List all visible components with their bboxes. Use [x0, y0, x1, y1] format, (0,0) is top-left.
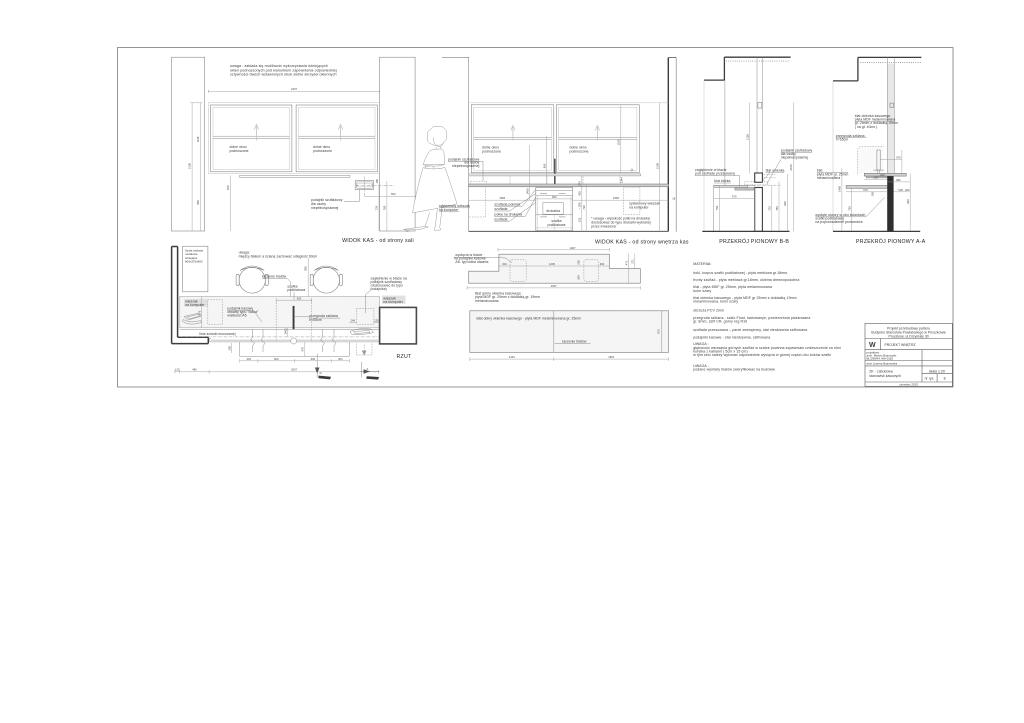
svg-text:720: 720: [375, 205, 379, 210]
svg-text:B: B: [319, 372, 323, 374]
svg-text:471: 471: [624, 260, 628, 265]
svg-text:225: 225: [578, 217, 582, 222]
svg-text:600: 600: [274, 357, 279, 361]
svg-text:8: 8: [944, 377, 946, 381]
svg-text:PRZEKRÓJ PIONOWY A-A: PRZEKRÓJ PIONOWY A-A: [856, 238, 926, 245]
svg-text:szuflada: szuflada: [494, 207, 507, 211]
svg-text:melaminowana: melaminowana: [817, 176, 841, 180]
svg-text:szuflada: szuflada: [494, 217, 507, 221]
svg-text:PRZEKRÓJ PIONOWY B-B: PRZEKRÓJ PIONOWY B-B: [719, 238, 789, 245]
svg-text:930: 930: [783, 201, 787, 206]
svg-text:niepełnosprawnej: niepełnosprawnej: [311, 206, 339, 210]
svg-text:1544: 1544: [619, 177, 623, 183]
svg-text:600: 600: [311, 357, 316, 361]
svg-text:szuflada półmisk: szuflada półmisk: [494, 202, 520, 206]
svg-text:w tym celu należy wykonać odpo: w tym celu należy wykonać odpowiednie wy…: [693, 353, 831, 357]
svg-text:304: 304: [600, 262, 605, 266]
svg-text:1150: 1150: [617, 139, 621, 145]
svg-text:238: 238: [577, 260, 581, 265]
svg-text:~ 300: ~ 300: [578, 202, 582, 209]
svg-text:między blatem a ścianą zachowa: między blatem a ścianą zachować odległoś…: [239, 255, 318, 259]
svg-text:1434: 1434: [509, 355, 515, 359]
svg-text:podnoszone: podnoszone: [482, 149, 501, 153]
svg-text:gr. 8mm, szlif CR, górny róg R: gr. 8mm, szlif CR, górny róg R10: [693, 319, 747, 323]
svg-text:fronty szuflad - płyta meblowa: fronty szuflad - płyta meblowa gr.18mm, …: [693, 278, 799, 282]
svg-text:1150: 1150: [745, 134, 749, 140]
svg-text:900: 900: [303, 266, 307, 271]
svg-text:200: 200: [873, 176, 878, 180]
svg-text:niepełnosprawnej: niepełnosprawnej: [452, 164, 480, 168]
svg-text:1400: 1400: [838, 186, 842, 192]
svg-text:180: 180: [375, 179, 379, 184]
svg-text:470: 470: [301, 347, 305, 352]
svg-text:930: 930: [906, 199, 910, 204]
svg-text:przez inwestora: przez inwestora: [591, 224, 616, 228]
svg-text:h=65cm: h=65cm: [309, 318, 322, 322]
svg-text:obrzeża PCV 2mm: obrzeża PCV 2mm: [693, 309, 724, 313]
svg-text:sztywności dwóch wstawionych o: sztywności dwóch wstawionych obok siebie…: [230, 73, 337, 77]
svg-text:18: 18: [672, 197, 675, 201]
svg-text:1566: 1566: [499, 196, 505, 200]
svg-text:480: 480: [896, 178, 901, 182]
svg-text:h=65cm: h=65cm: [836, 137, 849, 141]
svg-text:270: 270: [578, 181, 582, 186]
svg-text:600: 600: [297, 296, 302, 300]
svg-text:750: 750: [847, 206, 851, 211]
svg-text:podajniki kasowe - stal nierdz: podajniki kasowe - stal nierdzewna, szli…: [693, 335, 770, 339]
svg-text:675: 675: [197, 310, 201, 315]
svg-text:150: 150: [870, 192, 874, 197]
svg-text:melaminowana: melaminowana: [475, 299, 499, 303]
svg-text:melaminowana, kolor szary: melaminowana, kolor szary: [693, 300, 738, 304]
svg-text:podnoszone: podnoszone: [230, 149, 249, 153]
svg-text:łączenie blatów: łączenie blatów: [562, 340, 587, 344]
svg-text:na poprowadzenie przewodów: na poprowadzenie przewodów: [815, 220, 863, 224]
svg-text:WIDOK KAS - od strony wnętrza: WIDOK KAS - od strony wnętrza kas: [595, 239, 689, 245]
svg-text:podnoszone: podnoszone: [313, 149, 332, 153]
svg-text:1566: 1566: [613, 196, 619, 200]
svg-text:podane wymiary blatów zweryfik: podane wymiary blatów zweryfikować na bu…: [693, 367, 775, 371]
svg-text:760: 760: [775, 206, 779, 211]
svg-text:2100: 2100: [188, 163, 192, 169]
svg-text:249: 249: [351, 318, 356, 322]
svg-text:WIDOK KAS - od strony sali: WIDOK KAS - od strony sali: [342, 238, 414, 244]
svg-text:RZUT: RZUT: [397, 354, 413, 360]
svg-text:200: 200: [905, 188, 910, 192]
svg-text:półka na drukarkę: półka na drukarkę: [494, 213, 522, 217]
svg-text:W: W: [869, 342, 876, 349]
svg-text:1400: 1400: [525, 188, 529, 194]
svg-text:blat okienka: blat okienka: [766, 168, 785, 172]
svg-text:podnoszone: podnoszone: [570, 149, 589, 153]
svg-text:blat biurka: blat biurka: [714, 179, 730, 183]
svg-text:boki, korpus szafki podblatowe: boki, korpus szafki podblatowej - płyta …: [693, 271, 788, 275]
svg-text:2607: 2607: [551, 284, 557, 288]
svg-text:435: 435: [578, 191, 582, 196]
svg-text:BL/299/94, WA-0118: BL/299/94, WA-0118: [867, 357, 894, 361]
svg-text:czerwiec 2015: czerwiec 2015: [899, 382, 918, 386]
svg-text:szuflada przesuwana – panel ze: szuflada przesuwana – panel zewnętrzny, …: [693, 328, 807, 332]
svg-text:1200: 1200: [549, 262, 555, 266]
svg-text:na komputer: na komputer: [383, 300, 403, 304]
svg-text:670: 670: [732, 194, 737, 198]
svg-text:750: 750: [715, 205, 719, 210]
svg-text:675: 675: [656, 329, 660, 334]
svg-text:łączenie blatów: łączenie blatów: [262, 275, 287, 279]
svg-text:600: 600: [552, 195, 557, 199]
svg-text:kolor szary: kolor szary: [693, 289, 711, 293]
svg-text:( na gł. 40cm ): ( na gł. 40cm ): [855, 125, 878, 129]
svg-text:2607: 2607: [291, 368, 297, 372]
svg-text:304: 304: [502, 262, 507, 266]
svg-text:1664: 1664: [608, 355, 614, 359]
svg-text:670: 670: [863, 188, 868, 192]
svg-text:A: A: [367, 367, 369, 371]
svg-text:720: 720: [768, 206, 772, 211]
svg-text:600x370x900: 600x370x900: [185, 259, 203, 263]
svg-text:MATERIAŁ: MATERIAŁ: [693, 262, 711, 266]
svg-text:stanowisk kasowych: stanowisk kasowych: [869, 374, 901, 378]
svg-text:pod szufladę przesuwaną: pod szufladę przesuwaną: [695, 172, 735, 176]
svg-text:*120: *120: [898, 188, 904, 192]
svg-text:A5- typ łódka otwarta: A5- typ łódka otwarta: [455, 260, 488, 264]
svg-text:240: 240: [880, 173, 885, 177]
svg-text:niepełnosprawnej: niepełnosprawnej: [781, 156, 809, 160]
svg-text:1407: 1407: [570, 246, 576, 250]
svg-text:730: 730: [582, 205, 586, 210]
svg-text:wielkości A5: wielkości A5: [227, 314, 246, 318]
svg-text:nr rys.: nr rys.: [925, 377, 935, 381]
svg-text:podblatowa: podblatowa: [548, 223, 566, 227]
svg-text:670: 670: [896, 155, 901, 159]
svg-text:970: 970: [226, 185, 230, 190]
svg-text:200: 200: [577, 275, 581, 280]
svg-text:linia ścianki murowanej: linia ścianki murowanej: [199, 332, 235, 336]
svg-text:950: 950: [196, 200, 200, 205]
svg-text:304: 304: [246, 357, 251, 361]
svg-text:PROJEKT WNĘTRZ: PROJEKT WNĘTRZ: [885, 343, 916, 347]
svg-text:130: 130: [374, 318, 379, 322]
svg-text:850: 850: [543, 163, 547, 168]
svg-text:na komputer: na komputer: [439, 208, 459, 212]
svg-text:1156: 1156: [196, 136, 200, 142]
svg-text:200: 200: [227, 346, 231, 351]
svg-text:skala 1:20: skala 1:20: [929, 369, 945, 373]
svg-text:Blat dolny okienka kasowego -: Blat dolny okienka kasowego - płyta MDF …: [477, 317, 582, 321]
svg-text:600: 600: [391, 192, 396, 196]
svg-text:arch.Joanna Bujnowska: arch.Joanna Bujnowska: [867, 362, 898, 366]
svg-text:271: 271: [631, 259, 635, 264]
svg-text:2100: 2100: [789, 164, 793, 170]
svg-text:na komputer: na komputer: [629, 206, 649, 210]
svg-text:drukarka: drukarka: [546, 209, 560, 213]
svg-text:1403: 1403: [283, 328, 287, 334]
svg-text:480: 480: [192, 368, 197, 372]
svg-text:780: 780: [383, 205, 387, 210]
svg-text:podajnika): podajnika): [371, 287, 387, 291]
svg-text:2407: 2407: [291, 87, 297, 91]
svg-text:2100: 2100: [656, 163, 660, 169]
svg-text:Pruszków, ul.Drzymały 30: Pruszków, ul.Drzymały 30: [888, 334, 928, 338]
svg-text:304: 304: [338, 357, 343, 361]
svg-text:na komputer: na komputer: [185, 303, 205, 307]
svg-text:120: 120: [175, 368, 180, 372]
